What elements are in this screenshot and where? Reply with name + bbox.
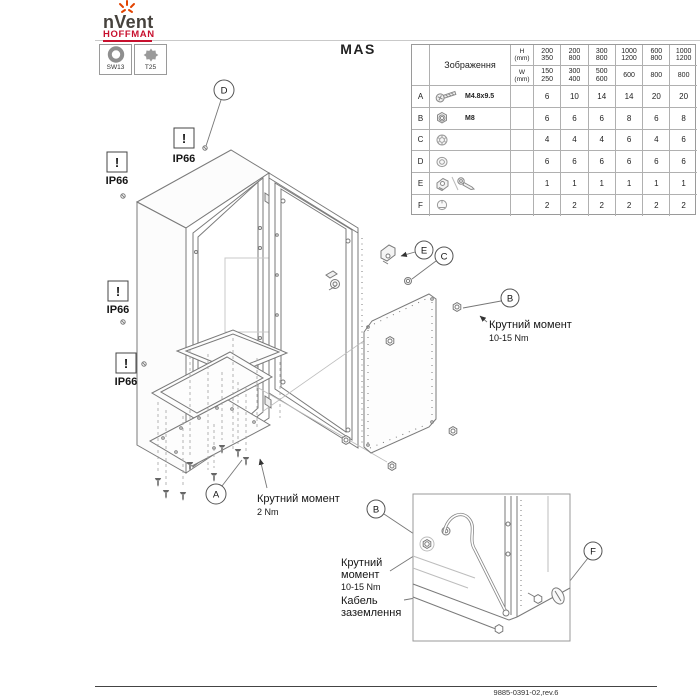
torque-annotation-body: Крутний момент 10-15 Nm bbox=[489, 319, 572, 343]
mounting-panel bbox=[364, 294, 436, 453]
callout-b-inset: B bbox=[367, 500, 385, 518]
svg-text:момент: момент bbox=[341, 569, 379, 581]
svg-text:Крутний момент: Крутний момент bbox=[257, 493, 340, 505]
svg-text:!: ! bbox=[116, 284, 120, 299]
ip66-marker: ! IP66 bbox=[106, 152, 129, 187]
callout-d: D bbox=[214, 80, 234, 100]
svg-text:!: ! bbox=[182, 131, 186, 146]
svg-text:IP66: IP66 bbox=[106, 175, 129, 187]
callout-b: B bbox=[501, 289, 519, 307]
ip66-marker: ! IP66 bbox=[107, 281, 130, 316]
svg-text:Кабель: Кабель bbox=[341, 595, 378, 607]
svg-text:B: B bbox=[373, 505, 379, 516]
footer-rule bbox=[95, 686, 657, 687]
torque-annotation-plate: Крутний момент 2 Nm bbox=[257, 493, 340, 517]
ground-cable-annotation: Кабель заземлення bbox=[341, 595, 401, 619]
ip66-marker: ! IP66 bbox=[115, 353, 138, 388]
svg-text:2 Nm: 2 Nm bbox=[257, 507, 279, 517]
svg-text:!: ! bbox=[115, 155, 119, 170]
cabinet-door bbox=[269, 173, 362, 448]
svg-text:F: F bbox=[590, 547, 596, 558]
svg-text:заземлення: заземлення bbox=[341, 607, 401, 619]
ip66-marker: ! IP66 bbox=[173, 128, 196, 165]
detail-inset bbox=[413, 494, 570, 641]
svg-text:Крутний: Крутний bbox=[341, 557, 382, 569]
svg-text:A: A bbox=[213, 490, 220, 501]
exploded-view-diagram: ! IP66 ! IP66 ! IP66 ! IP66 bbox=[0, 0, 700, 700]
svg-text:10-15 Nm: 10-15 Nm bbox=[489, 333, 529, 343]
callout-e: E bbox=[415, 241, 433, 259]
instruction-sheet-page: nVent HOFFMAN SW13 T25 MAS Зображення H … bbox=[0, 0, 700, 700]
washer-part bbox=[405, 278, 412, 285]
svg-text:E: E bbox=[421, 246, 427, 257]
svg-text:!: ! bbox=[124, 356, 128, 371]
wall-bracket bbox=[381, 245, 395, 264]
callout-f: F bbox=[584, 542, 602, 560]
svg-text:B: B bbox=[507, 294, 513, 305]
svg-text:10-15 Nm: 10-15 Nm bbox=[341, 582, 381, 592]
svg-text:IP66: IP66 bbox=[115, 376, 138, 388]
svg-text:IP66: IP66 bbox=[173, 153, 196, 165]
svg-text:IP66: IP66 bbox=[107, 304, 130, 316]
doc-number: 9885-0391-02,rev.6 bbox=[400, 688, 652, 697]
callout-a: A bbox=[206, 484, 226, 504]
svg-text:C: C bbox=[441, 252, 448, 263]
svg-text:Крутний момент: Крутний момент bbox=[489, 319, 572, 331]
svg-text:D: D bbox=[221, 86, 228, 97]
callout-c: C bbox=[435, 247, 453, 265]
torque-annotation-inset: Крутний момент 10-15 Nm bbox=[341, 557, 382, 592]
